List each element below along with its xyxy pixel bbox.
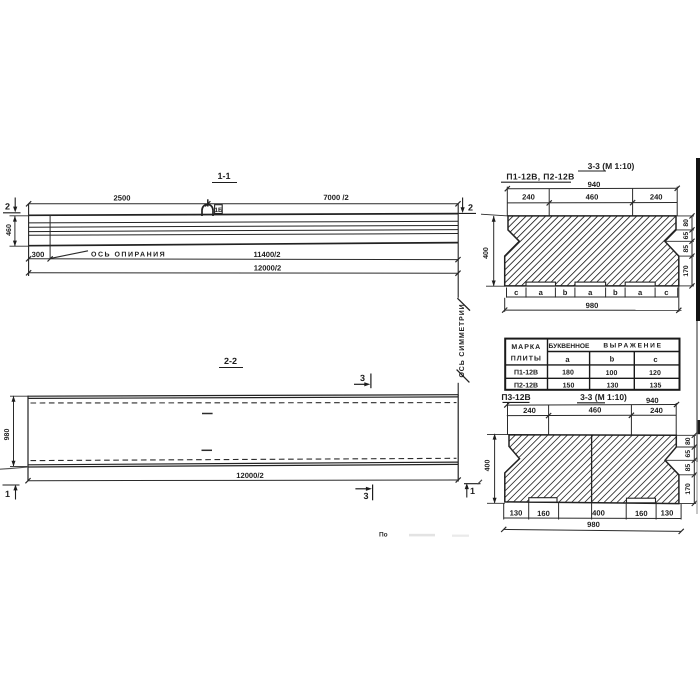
svg-text:По: По xyxy=(379,532,388,539)
svg-text:160: 160 xyxy=(635,509,648,518)
svg-text:П1-12В, П2-12В: П1-12В, П2-12В xyxy=(506,172,574,182)
svg-text:940: 940 xyxy=(588,180,601,189)
svg-text:160: 160 xyxy=(537,509,550,518)
svg-text:400: 400 xyxy=(485,460,492,472)
svg-text:1: 1 xyxy=(5,489,10,499)
svg-text:130: 130 xyxy=(510,508,523,517)
svg-text:П2-12В: П2-12В xyxy=(514,382,538,389)
svg-text:ОСЬ СИММЕТРИИ: ОСЬ СИММЕТРИИ xyxy=(459,304,466,378)
svg-text:135: 135 xyxy=(650,382,662,389)
svg-text:400: 400 xyxy=(483,247,490,259)
svg-text:2500: 2500 xyxy=(114,193,131,202)
svg-text:1-1: 1-1 xyxy=(217,171,230,181)
svg-text:85: 85 xyxy=(683,245,690,253)
svg-text:с: с xyxy=(514,288,518,297)
svg-text:7000 /2: 7000 /2 xyxy=(323,193,348,202)
svg-text:3: 3 xyxy=(363,491,368,501)
svg-text:МАРКА: МАРКА xyxy=(511,344,541,351)
svg-text:460: 460 xyxy=(589,406,602,415)
svg-text:1Б: 1Б xyxy=(214,207,223,214)
svg-text:БУКВЕННОЕ: БУКВЕННОЕ xyxy=(549,343,591,350)
svg-text:240: 240 xyxy=(522,193,535,202)
svg-text:65: 65 xyxy=(683,232,690,240)
svg-text:120: 120 xyxy=(649,370,661,377)
svg-text:400: 400 xyxy=(592,508,605,517)
svg-text:240: 240 xyxy=(523,406,536,415)
svg-text:11400/2: 11400/2 xyxy=(253,250,280,259)
svg-text:980: 980 xyxy=(587,520,600,529)
svg-text:100: 100 xyxy=(606,370,618,377)
svg-text:130: 130 xyxy=(661,508,674,517)
svg-text:170: 170 xyxy=(685,483,692,495)
svg-text:80: 80 xyxy=(683,219,690,227)
svg-text:240: 240 xyxy=(650,193,663,202)
svg-text:1: 1 xyxy=(470,486,475,496)
svg-text:130: 130 xyxy=(607,382,619,389)
svg-text:b: b xyxy=(610,355,615,364)
svg-text:3-3 (М 1:10): 3-3 (М 1:10) xyxy=(588,161,635,171)
svg-text:3: 3 xyxy=(360,373,365,383)
svg-text:ПЛИТЫ: ПЛИТЫ xyxy=(511,356,542,363)
svg-text:940: 940 xyxy=(646,396,659,405)
svg-text:П1-12В: П1-12В xyxy=(514,370,538,377)
svg-text:180: 180 xyxy=(562,370,574,377)
svg-text:2: 2 xyxy=(5,202,10,212)
svg-text:2: 2 xyxy=(468,203,473,213)
svg-text:3-3 (М 1:10): 3-3 (М 1:10) xyxy=(580,392,627,402)
svg-text:150: 150 xyxy=(563,382,575,389)
svg-text:П3-12В: П3-12В xyxy=(501,392,530,402)
svg-text:12000/2: 12000/2 xyxy=(236,471,263,480)
svg-text:с: с xyxy=(653,355,657,364)
svg-text:85: 85 xyxy=(685,464,692,472)
svg-text:240: 240 xyxy=(650,406,663,415)
svg-text:460: 460 xyxy=(6,224,13,236)
svg-text:ОСЬ ОПИРАНИЯ: ОСЬ ОПИРАНИЯ xyxy=(91,251,166,258)
svg-text:b: b xyxy=(613,288,618,297)
svg-text:170: 170 xyxy=(683,265,690,277)
svg-text:460: 460 xyxy=(586,192,599,201)
svg-text:2-2: 2-2 xyxy=(224,356,237,366)
svg-text:80: 80 xyxy=(685,437,692,445)
svg-text:300: 300 xyxy=(32,250,45,259)
svg-text:с: с xyxy=(664,288,668,297)
svg-text:980: 980 xyxy=(586,301,599,310)
svg-text:b: b xyxy=(563,288,568,297)
svg-text:980: 980 xyxy=(4,429,11,441)
svg-text:ВЫРАЖЕНИЕ: ВЫРАЖЕНИЕ xyxy=(603,343,662,350)
svg-text:65: 65 xyxy=(685,450,692,458)
svg-text:12000/2: 12000/2 xyxy=(254,264,281,273)
